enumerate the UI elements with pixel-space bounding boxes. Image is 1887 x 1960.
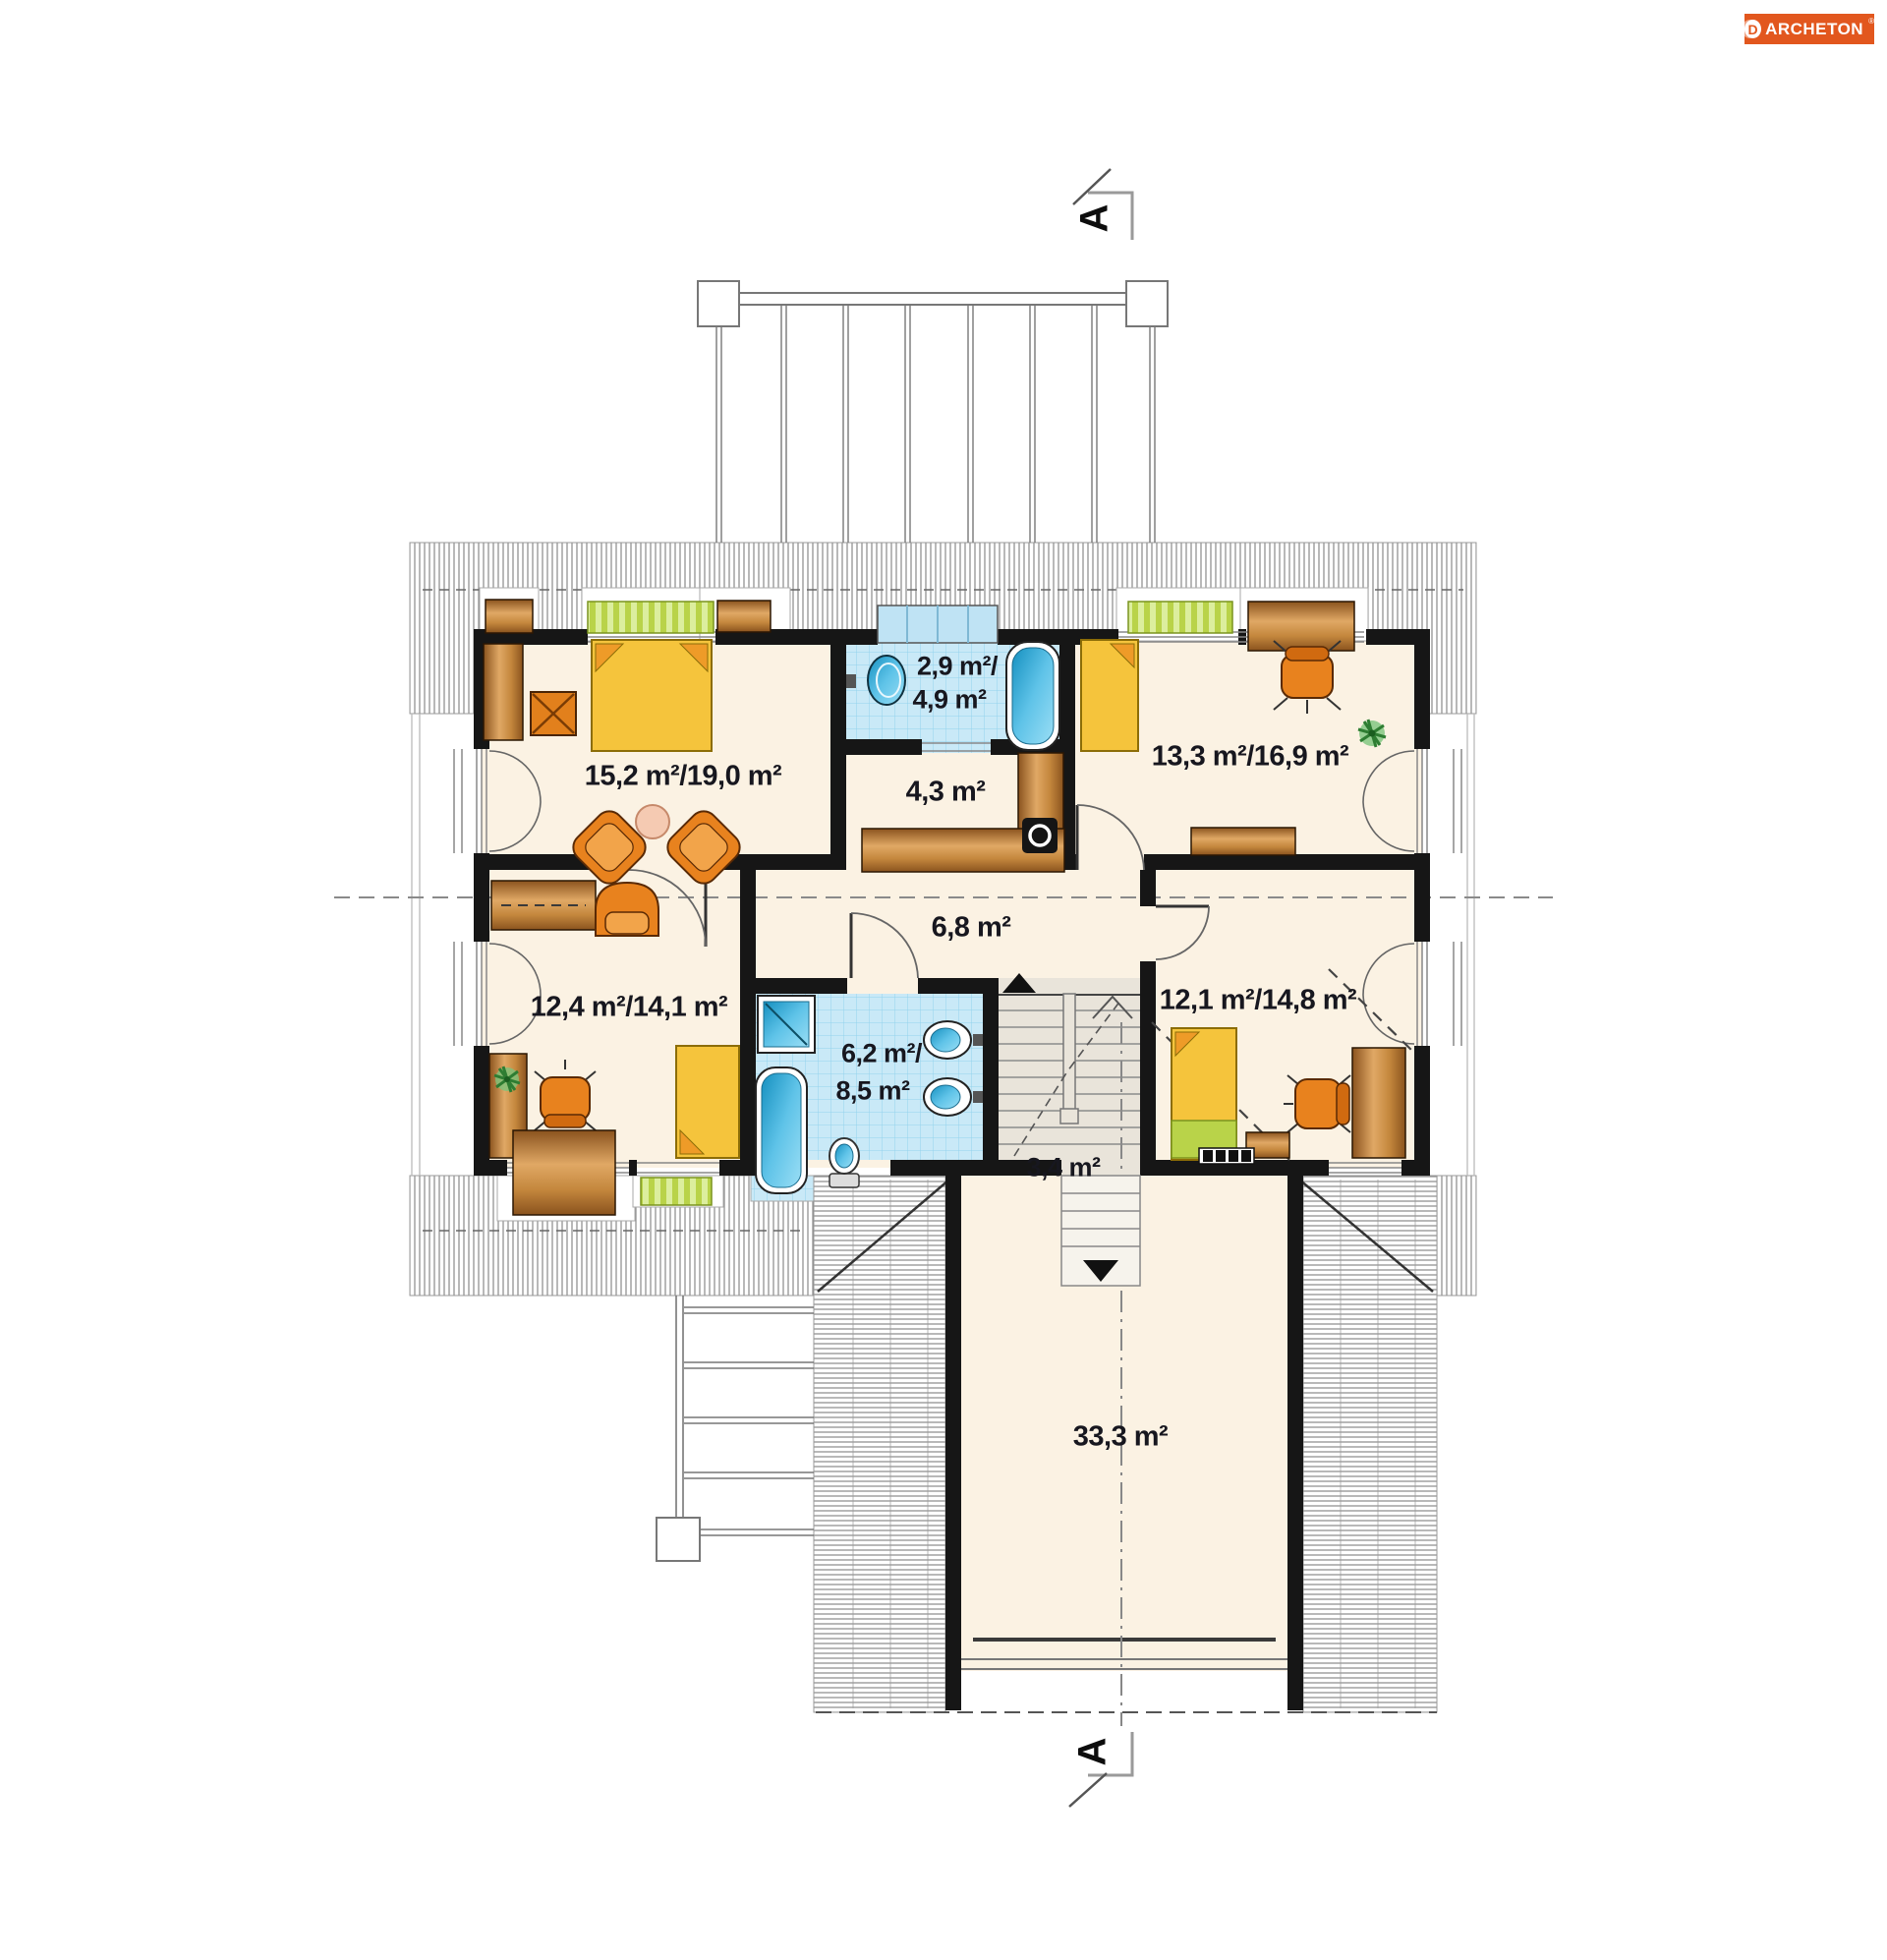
label-hall: 6,8 m²: [932, 912, 1011, 945]
bathroom-top-window: [878, 605, 998, 643]
label-bedroom-right-top: 13,3 m²/16,9 m²: [1152, 741, 1348, 774]
label-bath-top-2: 4,9 m²: [912, 685, 986, 716]
floor-plan-drawing: [0, 0, 1887, 1960]
garage-apron: [961, 1671, 1287, 1710]
label-garage: 33,3 m²: [1073, 1421, 1168, 1454]
toilet: [829, 1138, 859, 1187]
label-bath-top-1: 2,9 m²/: [917, 652, 998, 682]
section-marker-bottom-letter: A: [1071, 1738, 1115, 1766]
label-landing: 3,4 m²: [1026, 1153, 1100, 1183]
label-bedroom-left-bottom: 12,4 m²/14,1 m²: [531, 992, 727, 1024]
exterior-stair: [657, 1296, 814, 1561]
archeton-logo: D ARCHETON ®: [1744, 14, 1874, 44]
label-bath-bottom-2: 8,5 m²: [835, 1076, 909, 1107]
archeton-logo-text: ARCHETON: [1765, 20, 1863, 39]
label-bedroom-left-top: 15,2 m²/19,0 m²: [585, 761, 781, 793]
floor-plan-page: 15,2 m²/19,0 m² 2,9 m²/ 4,9 m² 4,3 m² 13…: [0, 0, 1887, 1960]
radiator: [1199, 1148, 1254, 1164]
archeton-logo-icon: D: [1744, 20, 1761, 38]
label-bedroom-right-bottom: 12,1 m²/14,8 m²: [1160, 985, 1356, 1017]
section-marker-top-letter: A: [1073, 204, 1117, 233]
label-bath-bottom-1: 6,2 m²/: [841, 1039, 922, 1069]
balcony-railing: [698, 281, 1168, 543]
registered-mark: ®: [1868, 17, 1874, 26]
label-corridor: 4,3 m²: [906, 777, 986, 809]
